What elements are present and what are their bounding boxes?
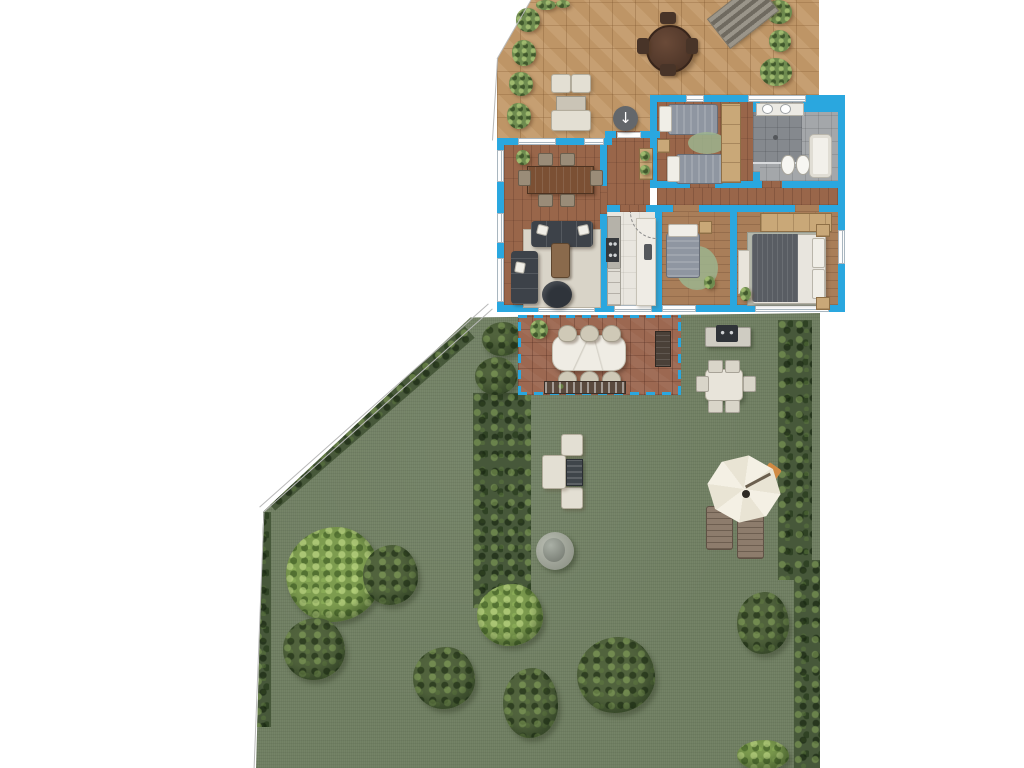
window xyxy=(748,95,806,102)
dining-chair xyxy=(590,170,603,186)
indoor-plant xyxy=(640,151,650,161)
dining-chair xyxy=(538,194,553,207)
bed-pillow xyxy=(668,224,698,237)
window xyxy=(518,138,556,145)
terrace-armchair xyxy=(571,74,591,93)
boundary-hedge xyxy=(794,560,820,768)
terrace-chair xyxy=(660,64,676,76)
indoor-plant xyxy=(640,165,650,175)
terrace-loveseat xyxy=(551,110,591,131)
round-armchair xyxy=(542,281,572,308)
shrub xyxy=(503,668,558,738)
window xyxy=(838,230,845,264)
wall xyxy=(803,95,845,112)
coffee-table xyxy=(551,243,570,278)
door-opening xyxy=(673,205,699,212)
shrub xyxy=(577,637,655,713)
dining-chair xyxy=(560,194,575,207)
wall xyxy=(730,212,737,305)
door-opening xyxy=(795,205,819,212)
hedge-block xyxy=(473,393,531,608)
bathtub xyxy=(809,134,832,178)
bed-throw xyxy=(752,234,798,302)
shrub xyxy=(475,357,517,395)
nightstand xyxy=(816,224,830,237)
barbecue-grill xyxy=(716,325,738,342)
wicker-chair xyxy=(580,325,599,342)
terrace-coffee-table xyxy=(556,96,586,111)
pergola-outline xyxy=(678,315,681,395)
floor-plan-canvas: ↓ xyxy=(0,0,1024,768)
indoor-plant xyxy=(516,150,530,165)
indoor-plant xyxy=(740,287,751,301)
sofa xyxy=(511,251,538,304)
kitchen-sink xyxy=(644,244,652,260)
sink xyxy=(780,104,791,114)
stove xyxy=(606,238,619,262)
corridor-floor xyxy=(657,188,838,205)
bed-pillow xyxy=(812,238,825,268)
terrace-chair xyxy=(686,38,698,54)
potted-plant xyxy=(760,58,792,86)
window xyxy=(497,258,504,302)
outdoor-chair xyxy=(743,376,756,392)
dining-chair xyxy=(518,170,531,186)
entrance-arrow-icon: ↓ xyxy=(613,106,638,131)
door-leaf xyxy=(617,132,641,138)
indoor-plant xyxy=(704,276,715,289)
nightstand xyxy=(816,297,830,310)
garden-armchair xyxy=(561,434,583,456)
shrub xyxy=(737,592,789,654)
outdoor-chair xyxy=(725,400,740,413)
dining-chair xyxy=(560,153,575,166)
terrace-chair xyxy=(637,38,649,54)
boundary-hedge xyxy=(778,320,812,580)
terrace-armchair xyxy=(551,74,571,93)
potted-plant xyxy=(512,40,536,66)
outdoor-chair xyxy=(696,376,709,392)
potted-plant xyxy=(769,30,791,52)
window xyxy=(497,213,504,243)
kitchen-drawers xyxy=(607,268,621,306)
wall xyxy=(605,131,612,145)
shrub xyxy=(413,647,475,709)
outdoor-chair xyxy=(725,360,740,373)
garden-loveseat xyxy=(542,455,566,489)
shrub xyxy=(363,545,418,605)
planter-box xyxy=(544,381,626,394)
wicker-chair xyxy=(602,325,621,342)
single-bed xyxy=(676,154,724,184)
parasol-pole xyxy=(742,490,750,498)
outdoor-dining-table xyxy=(705,369,743,401)
stone-urn xyxy=(543,538,565,562)
shower-drain xyxy=(773,135,778,140)
window xyxy=(497,150,504,182)
sofa-pillow xyxy=(514,261,526,274)
pergola-outline xyxy=(518,315,681,318)
window xyxy=(584,138,604,145)
nightstand xyxy=(699,221,712,234)
bed-pillow xyxy=(812,269,825,299)
patio-bench xyxy=(655,331,671,367)
door-opening xyxy=(762,181,782,188)
nightstand xyxy=(657,139,670,153)
wall xyxy=(600,145,607,305)
shrub xyxy=(737,740,789,768)
shrub xyxy=(283,618,345,680)
outdoor-chair xyxy=(708,400,723,413)
window xyxy=(686,95,704,102)
wall xyxy=(838,102,845,312)
dining-table xyxy=(527,166,594,194)
potted-plant xyxy=(556,0,570,8)
wicker-chair xyxy=(558,325,577,342)
door-opening xyxy=(620,205,646,212)
bed xyxy=(666,233,700,278)
dining-chair xyxy=(538,153,553,166)
shrub xyxy=(477,584,543,646)
single-bed xyxy=(668,104,718,135)
garden-coffee-table xyxy=(566,459,583,486)
potted-plant xyxy=(530,320,548,339)
bed-pillow xyxy=(659,106,672,132)
door-opening xyxy=(600,186,607,214)
sink xyxy=(762,104,773,114)
shrub xyxy=(482,322,522,356)
potted-plant xyxy=(509,72,533,96)
terrace-chair xyxy=(660,12,676,24)
window xyxy=(662,305,696,312)
potted-plant xyxy=(536,0,556,10)
toilet xyxy=(781,155,795,175)
bed-pillow xyxy=(667,156,680,182)
potted-plant xyxy=(507,103,531,129)
garden-armchair xyxy=(561,487,583,509)
outdoor-chair xyxy=(708,360,723,373)
wardrobe xyxy=(721,103,741,183)
pergola-outline xyxy=(518,315,521,395)
bidet xyxy=(796,155,810,175)
window xyxy=(614,305,652,312)
